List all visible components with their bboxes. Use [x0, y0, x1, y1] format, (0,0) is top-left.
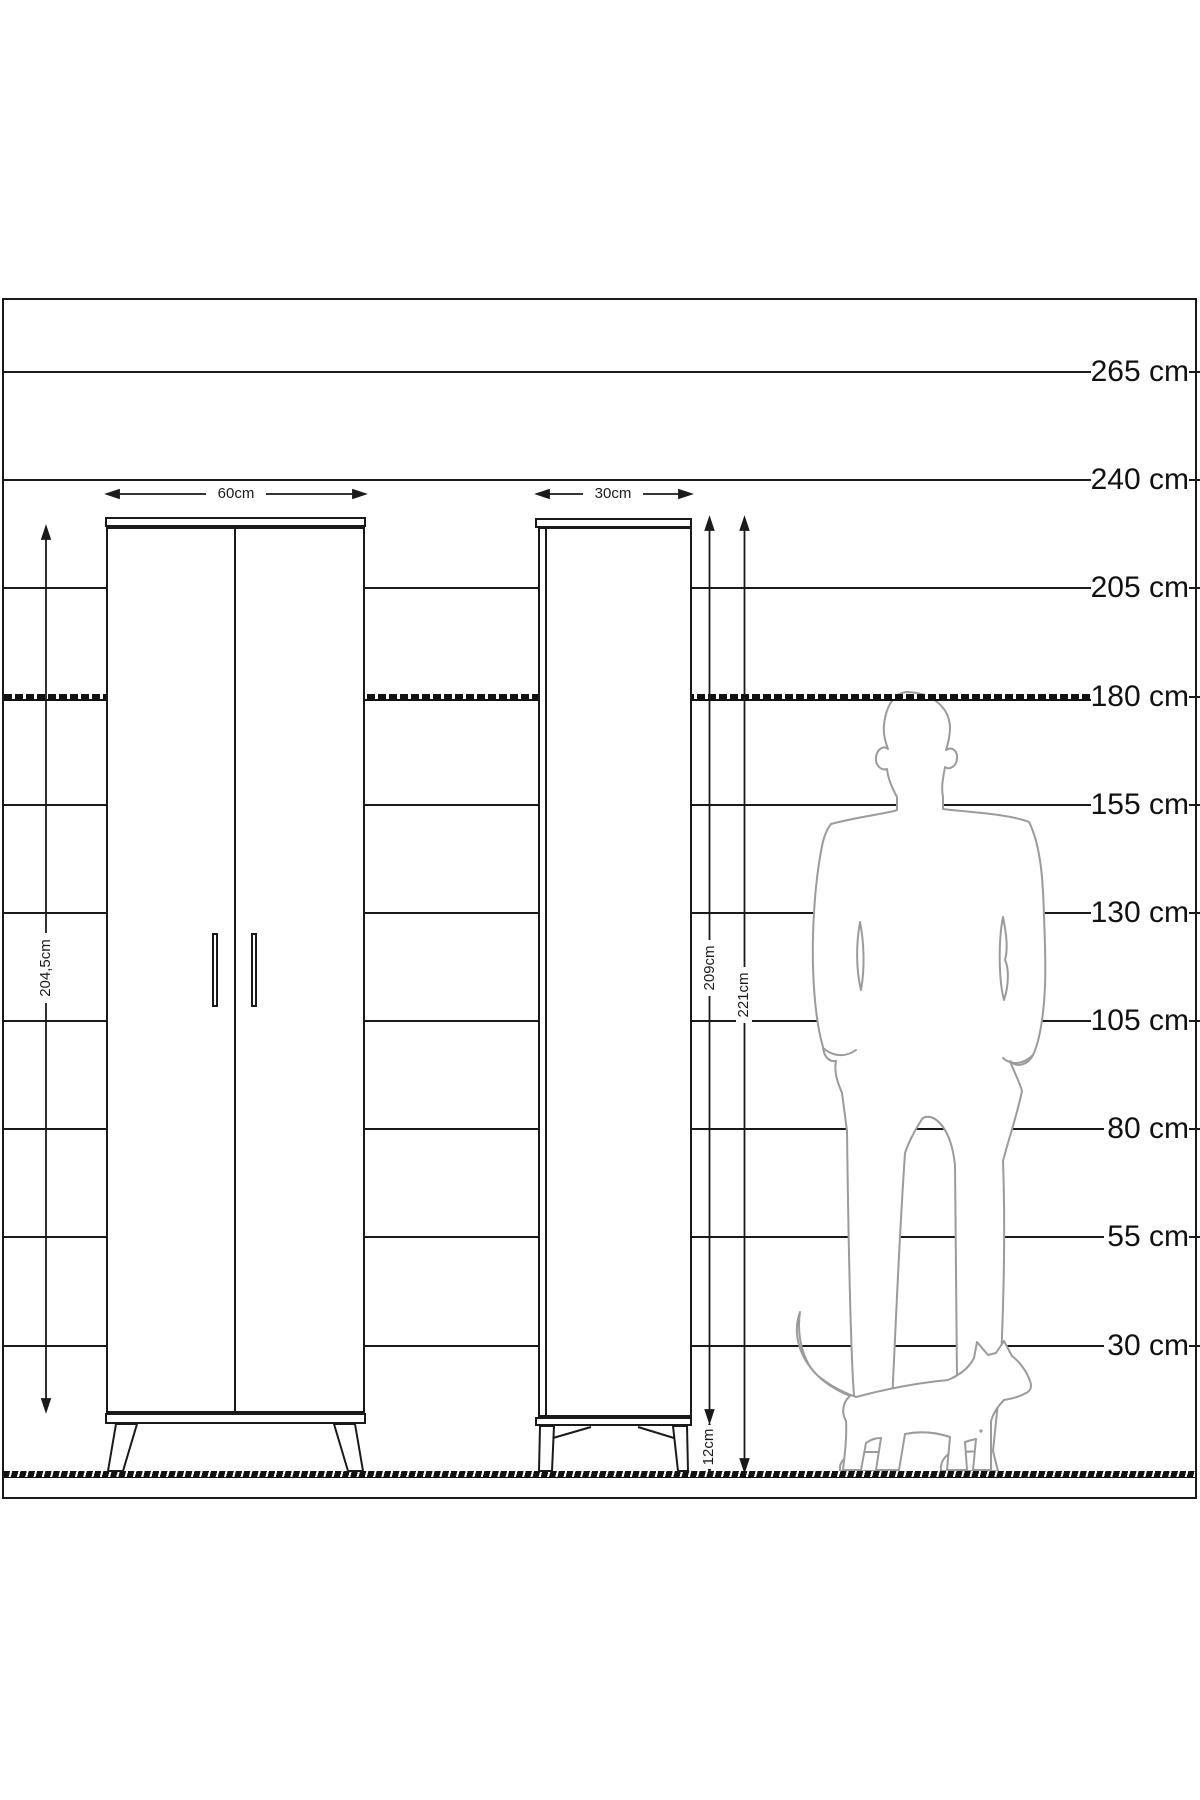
dim-label-cabinet-total-height: 221cm: [736, 967, 752, 1023]
dimension-lines: [42, 490, 749, 1471]
wardrobe-legs: [108, 1424, 363, 1471]
cabinet-leg-right: [673, 1426, 688, 1471]
diagram-frame: 265 cm 240 cm 205 cm 180 cm 155 cm 130 c…: [2, 298, 1197, 1499]
dim-label-leg-height: 12cm: [701, 1425, 717, 1469]
wardrobe-leg-left: [108, 1424, 137, 1471]
cabinet-legs: [539, 1426, 688, 1471]
wardrobe-leg-right: [334, 1424, 363, 1471]
dim-label-wardrobe-width: 60cm: [206, 484, 266, 504]
dim-label-cabinet-width: 30cm: [583, 484, 643, 504]
structure-layer: [4, 300, 1195, 1497]
dim-label-wardrobe-height: 204,5cm: [38, 933, 54, 1003]
dimension-diagram: 265 cm 240 cm 205 cm 180 cm 155 cm 130 c…: [0, 0, 1200, 1800]
dim-label-cabinet-body-height: 209cm: [702, 940, 718, 996]
cabinet-leg-left: [539, 1426, 554, 1471]
cabinet-leg-brace-left: [553, 1427, 591, 1438]
cabinet-leg-brace-right: [638, 1427, 674, 1438]
